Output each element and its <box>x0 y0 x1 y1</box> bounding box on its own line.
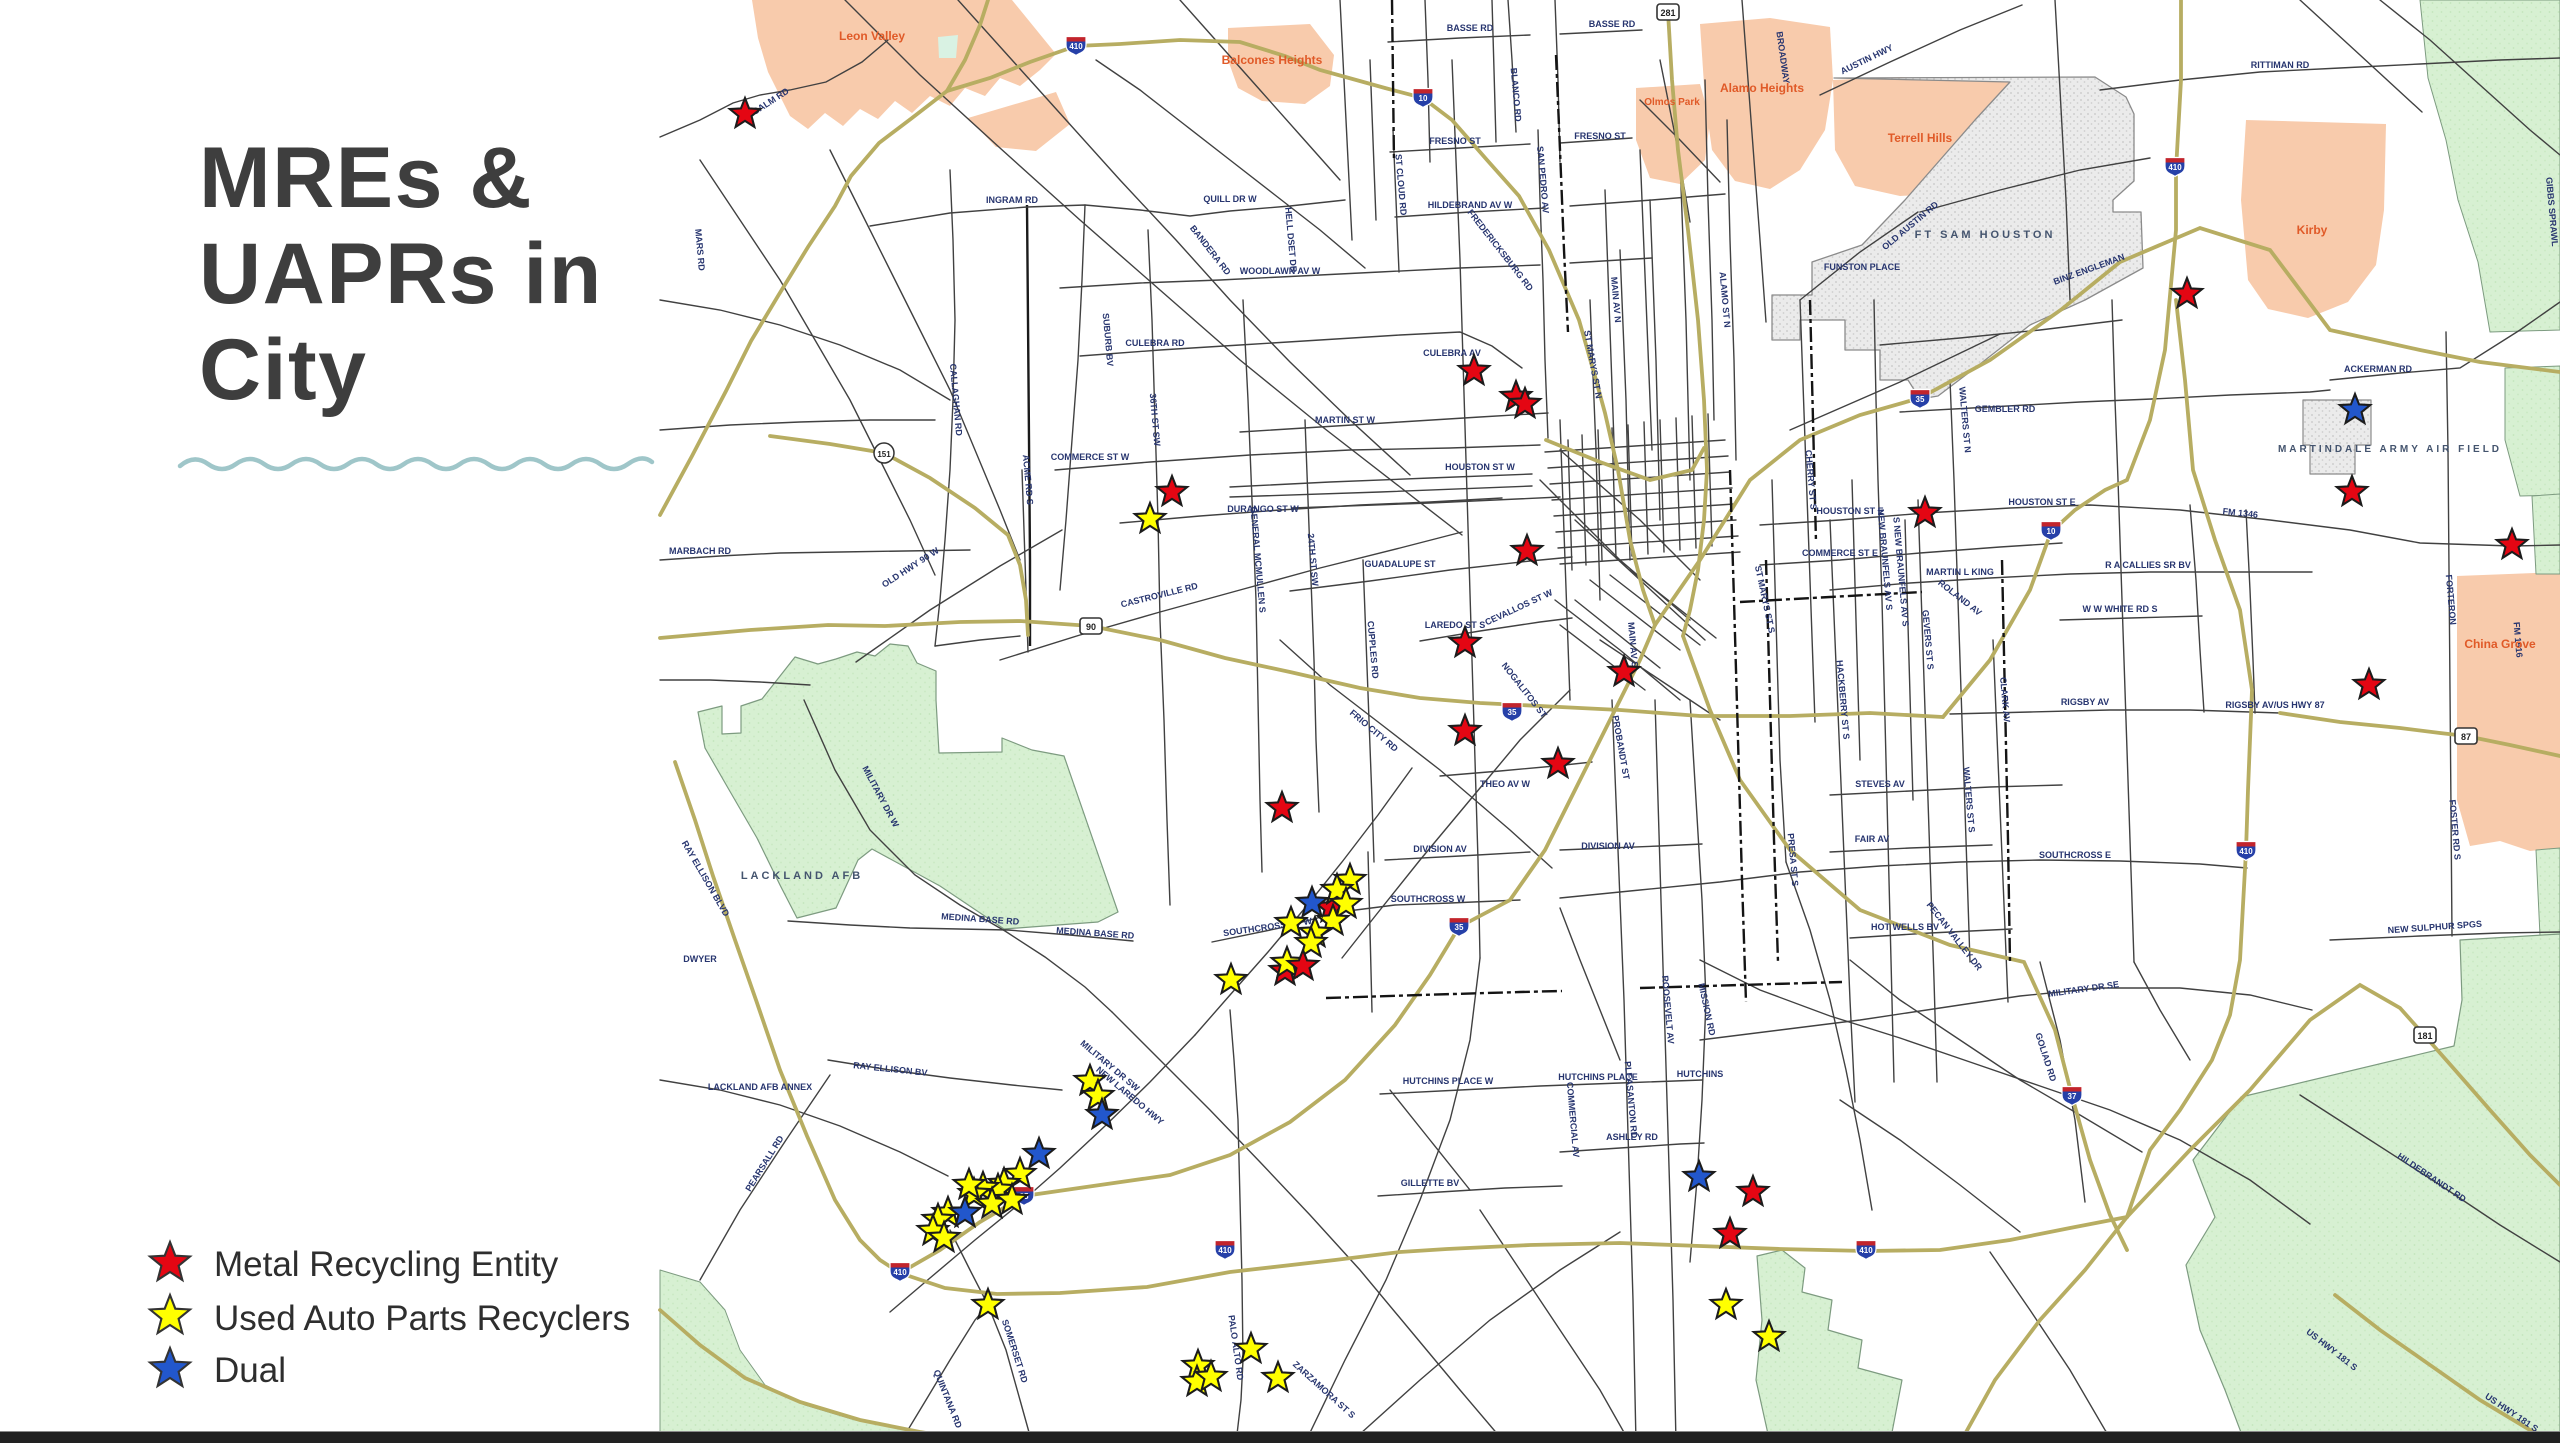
svg-text:CHERRY ST S: CHERRY ST S <box>1803 449 1818 510</box>
svg-text:Balcones Heights: Balcones Heights <box>1222 53 1323 67</box>
svg-text:10: 10 <box>2047 527 2056 536</box>
svg-text:Olmos Park: Olmos Park <box>1644 97 1700 108</box>
svg-text:PEARSALL RD: PEARSALL RD <box>743 1133 786 1193</box>
svg-text:S NEW BRAUNFELS AV S: S NEW BRAUNFELS AV S <box>1891 517 1911 627</box>
svg-text:COMMERCIAL AV: COMMERCIAL AV <box>1565 1082 1582 1158</box>
svg-text:GOLIAD RD: GOLIAD RD <box>2033 1032 2058 1084</box>
svg-text:410: 410 <box>1218 1246 1232 1255</box>
svg-text:SOUTHCROSS W: SOUTHCROSS W <box>1391 894 1466 904</box>
svg-text:Leon Valley: Leon Valley <box>839 29 905 43</box>
svg-text:35: 35 <box>1455 923 1464 932</box>
svg-text:RITTIMAN RD: RITTIMAN RD <box>2251 60 2310 70</box>
svg-text:DIVISION AV: DIVISION AV <box>1581 841 1635 851</box>
svg-text:181: 181 <box>2417 1031 2432 1041</box>
svg-text:STEVES AV: STEVES AV <box>1855 779 1905 789</box>
svg-text:WOODLAWN AV W: WOODLAWN AV W <box>1240 266 1321 276</box>
svg-text:87: 87 <box>2461 732 2471 742</box>
svg-text:SOUTHCROSS E: SOUTHCROSS E <box>2039 850 2111 860</box>
svg-text:MARTIN ST W: MARTIN ST W <box>1315 415 1375 425</box>
svg-text:FRIO CITY RD: FRIO CITY RD <box>1348 708 1401 754</box>
svg-text:Metal Recycling Entity: Metal Recycling Entity <box>214 1245 559 1284</box>
svg-text:ROLAND AV: ROLAND AV <box>1936 578 1984 618</box>
svg-text:FRESNO ST: FRESNO ST <box>1574 131 1626 141</box>
svg-text:MEDINA BASE RD: MEDINA BASE RD <box>1056 925 1135 940</box>
svg-text:WALTERS ST S: WALTERS ST S <box>1961 767 1977 833</box>
svg-text:410: 410 <box>1069 42 1083 51</box>
svg-text:ST MARYS ST N: ST MARYS ST N <box>1582 330 1604 400</box>
svg-text:BASSE RD: BASSE RD <box>1589 19 1636 29</box>
svg-text:R A CALLIES SR BV: R A CALLIES SR BV <box>2105 560 2191 570</box>
svg-text:FREDERICKSBURG RD: FREDERICKSBURG RD <box>1465 207 1535 293</box>
svg-text:SUBURB BV: SUBURB BV <box>1101 313 1116 367</box>
svg-text:HOUSTON ST E: HOUSTON ST E <box>1816 506 1883 516</box>
svg-text:FORTERON: FORTERON <box>2444 574 2458 625</box>
svg-text:410: 410 <box>2239 847 2253 856</box>
svg-text:THEO AV W: THEO AV W <box>1480 779 1531 789</box>
svg-text:LAREDO ST S: LAREDO ST S <box>1425 620 1486 630</box>
svg-text:FM 1346: FM 1346 <box>2222 506 2258 520</box>
svg-text:HOUSTON ST W: HOUSTON ST W <box>1445 462 1515 472</box>
svg-text:W W WHITE RD S: W W WHITE RD S <box>2083 604 2158 614</box>
svg-text:FUNSTON PLACE: FUNSTON PLACE <box>1824 262 1900 272</box>
svg-text:35: 35 <box>1916 395 1925 404</box>
svg-text:MAIN AV S: MAIN AV S <box>1626 622 1640 668</box>
svg-text:MISSION RD: MISSION RD <box>1696 982 1717 1037</box>
svg-text:HUTCHINS PLACE: HUTCHINS PLACE <box>1558 1072 1638 1082</box>
svg-text:ZARZAMORA ST S: ZARZAMORA ST S <box>1291 1359 1357 1420</box>
svg-text:COMMERCE ST E: COMMERCE ST E <box>1802 548 1878 558</box>
svg-text:ASHLEY RD: ASHLEY RD <box>1606 1132 1658 1142</box>
svg-text:FRESNO ST: FRESNO ST <box>1429 136 1481 146</box>
svg-text:BANDERA RD: BANDERA RD <box>1188 223 1233 277</box>
svg-text:SAN PEDRO AV: SAN PEDRO AV <box>1535 146 1551 214</box>
svg-text:DIVISION AV: DIVISION AV <box>1413 844 1467 854</box>
svg-text:HELL DSET DR: HELL DSET DR <box>1283 207 1299 273</box>
svg-text:151: 151 <box>877 450 891 459</box>
svg-text:WALTERS ST N: WALTERS ST N <box>1957 386 1973 453</box>
svg-text:ROOSEVELT AV: ROOSEVELT AV <box>1660 975 1676 1044</box>
svg-text:281: 281 <box>1660 8 1675 18</box>
svg-text:MILITARY DR SE: MILITARY DR SE <box>2048 979 2120 999</box>
svg-text:BASSE RD: BASSE RD <box>1447 23 1494 33</box>
svg-text:GILLETTE BV: GILLETTE BV <box>1401 1178 1460 1188</box>
svg-text:QUILL DR W: QUILL DR W <box>1203 194 1257 204</box>
svg-text:CULEBRA AV: CULEBRA AV <box>1423 348 1481 358</box>
svg-text:410: 410 <box>893 1268 907 1277</box>
svg-text:DURANGO ST W: DURANGO ST W <box>1227 504 1299 514</box>
svg-text:410: 410 <box>2168 163 2182 172</box>
svg-text:GENERAL MCMULLEN S: GENERAL MCMULLEN S <box>1248 506 1267 613</box>
svg-text:NEW SULPHUR SPGS: NEW SULPHUR SPGS <box>2387 919 2482 936</box>
svg-text:BLANCO RD: BLANCO RD <box>1509 67 1524 122</box>
svg-text:HUTCHINS PLACE W: HUTCHINS PLACE W <box>1403 1076 1494 1086</box>
svg-text:Used Auto Parts Recyclers: Used Auto Parts Recyclers <box>214 1299 630 1338</box>
svg-text:PRESA ST S: PRESA ST S <box>1786 833 1801 887</box>
svg-text:GUADALUPE ST: GUADALUPE ST <box>1364 559 1436 569</box>
svg-text:AUSTIN HWY: AUSTIN HWY <box>1839 42 1895 76</box>
svg-text:RIGSBY AV: RIGSBY AV <box>2061 697 2109 707</box>
svg-text:HUTCHINS: HUTCHINS <box>1677 1069 1724 1079</box>
svg-text:MARTIN L KING: MARTIN L KING <box>1926 567 1994 577</box>
svg-text:INGRAM RD: INGRAM RD <box>986 195 1038 205</box>
svg-text:LACKLAND AFB ANNEX: LACKLAND AFB ANNEX <box>708 1082 812 1092</box>
svg-text:10: 10 <box>1419 94 1428 103</box>
svg-text:24TH ST SW: 24TH ST SW <box>1306 533 1321 587</box>
svg-text:Kirby: Kirby <box>2297 223 2328 237</box>
svg-text:RAY ELLISON BV: RAY ELLISON BV <box>853 1060 928 1078</box>
svg-text:Dual: Dual <box>214 1351 286 1390</box>
svg-text:CULEBRA RD: CULEBRA RD <box>1125 338 1185 348</box>
svg-text:ALAMO ST N: ALAMO ST N <box>1718 271 1733 328</box>
svg-text:CLARK AV: CLARK AV <box>1998 677 2012 723</box>
svg-text:MARTINDALE ARMY AIR FIELD: MARTINDALE ARMY AIR FIELD <box>2278 444 2502 455</box>
svg-text:China Grove: China Grove <box>2464 637 2536 651</box>
svg-text:LACKLAND AFB: LACKLAND AFB <box>741 870 863 882</box>
svg-text:35: 35 <box>1508 708 1517 717</box>
svg-text:SOMERSET RD: SOMERSET RD <box>1000 1318 1030 1384</box>
svg-text:Terrell Hills: Terrell Hills <box>1888 131 1953 145</box>
svg-text:ACKERMAN RD: ACKERMAN RD <box>2344 364 2412 374</box>
svg-text:36TH ST SW: 36TH ST SW <box>1148 393 1163 447</box>
svg-text:GEMBLER RD: GEMBLER RD <box>1975 404 2036 414</box>
svg-text:FT SAM HOUSTON: FT SAM HOUSTON <box>1915 229 2056 241</box>
svg-text:HOT WELLS BV: HOT WELLS BV <box>1871 922 1939 932</box>
svg-text:QUINTANA RD: QUINTANA RD <box>932 1368 965 1430</box>
svg-text:COMMERCE ST W: COMMERCE ST W <box>1051 452 1130 462</box>
svg-text:HOUSTON ST E: HOUSTON ST E <box>2008 497 2075 507</box>
svg-text:90: 90 <box>1086 622 1096 632</box>
svg-text:RIGSBY AV/US HWY 87: RIGSBY AV/US HWY 87 <box>2225 700 2324 710</box>
svg-text:410: 410 <box>1859 1246 1873 1255</box>
svg-text:37: 37 <box>2068 1092 2077 1101</box>
svg-text:Alamo Heights: Alamo Heights <box>1720 81 1804 95</box>
svg-text:HILDEBRAND AV W: HILDEBRAND AV W <box>1428 200 1513 210</box>
svg-text:FAIR AV: FAIR AV <box>1855 834 1890 844</box>
